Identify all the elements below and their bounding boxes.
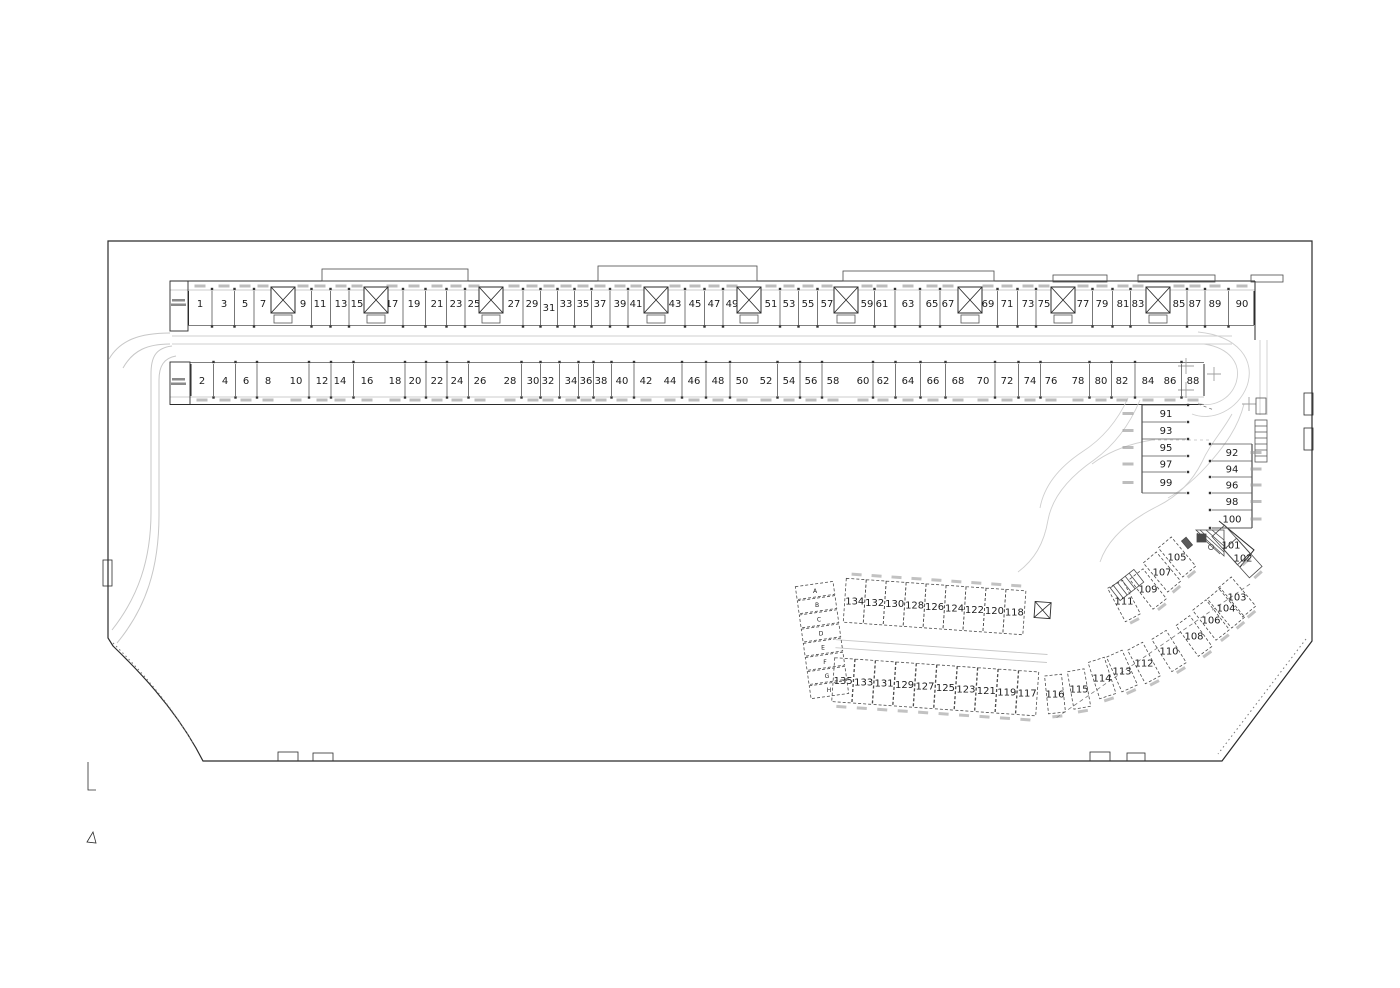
vestibule-label-bar xyxy=(172,299,185,302)
column-dot xyxy=(729,361,731,363)
column-dot xyxy=(703,325,705,327)
boundary-bump-bottom-1 xyxy=(278,752,298,761)
column-dot xyxy=(939,288,941,290)
column-dot xyxy=(1016,325,1018,327)
stall-number-114: 114 xyxy=(1092,674,1111,685)
column-dot xyxy=(797,288,799,290)
stall-tag xyxy=(617,399,628,402)
column-dot xyxy=(425,361,427,363)
stall-tag xyxy=(352,285,363,288)
stall-number-20: 20 xyxy=(409,376,422,387)
stall-number-27: 27 xyxy=(508,299,521,310)
stall-number-1: 1 xyxy=(197,299,203,310)
stall-letter-D: D xyxy=(819,630,824,637)
stall-tag xyxy=(1174,285,1185,288)
column-dot xyxy=(234,396,236,398)
stall-tag xyxy=(1210,285,1221,288)
stall-tag xyxy=(903,399,914,402)
stall-number-104: 104 xyxy=(1216,604,1235,615)
stall-number-130: 130 xyxy=(885,599,904,610)
stall-number-28: 28 xyxy=(504,376,517,387)
stall-number-74: 74 xyxy=(1024,376,1037,387)
column-dot xyxy=(1209,492,1211,494)
stall-tag xyxy=(1187,570,1197,579)
column-dot xyxy=(799,396,801,398)
column-dot xyxy=(310,288,312,290)
stall-tag xyxy=(806,399,817,402)
stall-tag xyxy=(822,285,833,288)
stall-number-26: 26 xyxy=(474,376,487,387)
stall-tag xyxy=(918,711,928,715)
road-edge xyxy=(1048,400,1140,520)
stall-number-86: 86 xyxy=(1164,376,1177,387)
stall-tag xyxy=(1117,399,1128,402)
roof-protrusion xyxy=(598,266,757,281)
column-dot xyxy=(253,325,255,327)
stall-number-51: 51 xyxy=(765,299,778,310)
stall-tag xyxy=(991,582,1001,586)
column-dot xyxy=(573,325,575,327)
shaft-landing xyxy=(367,315,385,323)
column-dot xyxy=(1111,325,1113,327)
column-dot xyxy=(445,288,447,290)
shaft-landing xyxy=(482,315,500,323)
stall-tag xyxy=(336,285,347,288)
column-dot xyxy=(1204,325,1206,327)
stall-number-41: 41 xyxy=(630,299,643,310)
column-dot xyxy=(703,288,705,290)
road-edge xyxy=(1018,520,1048,572)
stall-tag xyxy=(410,399,421,402)
stall-tag xyxy=(737,399,748,402)
stall-number-24: 24 xyxy=(451,376,464,387)
stall-number-60: 60 xyxy=(857,376,870,387)
column-dot xyxy=(1088,396,1090,398)
column-dot xyxy=(894,396,896,398)
column-dot xyxy=(872,361,874,363)
column-dot xyxy=(233,288,235,290)
stall-number-33: 33 xyxy=(560,299,573,310)
stall-number-21: 21 xyxy=(431,299,444,310)
column-dot xyxy=(256,361,258,363)
site-boundary-outline xyxy=(108,241,1312,761)
stall-tag xyxy=(670,285,681,288)
stall-number-83: 83 xyxy=(1132,299,1145,310)
column-dot xyxy=(996,325,998,327)
column-dot xyxy=(873,288,875,290)
stall-tag xyxy=(836,705,846,709)
shaft-xbox xyxy=(1146,287,1170,323)
column-dot xyxy=(1129,325,1131,327)
stall-number-71: 71 xyxy=(1001,299,1014,310)
stall-number-108: 108 xyxy=(1184,632,1203,643)
column-dot xyxy=(994,396,996,398)
column-dot xyxy=(821,361,823,363)
stall-tag xyxy=(862,285,873,288)
column-dot xyxy=(1088,361,1090,363)
stack-91-99: 9193959799 xyxy=(1123,404,1190,494)
stall-number-38: 38 xyxy=(595,376,608,387)
stall-number-134: 134 xyxy=(845,596,864,607)
road-edge xyxy=(109,333,170,359)
stall-tag xyxy=(1123,463,1134,466)
boundary-bump-bottom-3 xyxy=(1090,752,1110,761)
stall-number-85: 85 xyxy=(1173,299,1186,310)
stall-number-67: 67 xyxy=(942,299,955,310)
stall-number-36: 36 xyxy=(580,376,593,387)
stall-number-105: 105 xyxy=(1167,553,1186,564)
stall-tag xyxy=(939,712,949,716)
stall-tag xyxy=(528,399,539,402)
stall-tag xyxy=(566,399,577,402)
stall-tag xyxy=(1097,285,1108,288)
stall-tag xyxy=(561,285,572,288)
column-dot xyxy=(592,361,594,363)
column-dot xyxy=(424,325,426,327)
stall-number-65: 65 xyxy=(926,299,939,310)
stall-number-19: 19 xyxy=(408,299,421,310)
stall-tag xyxy=(1157,602,1167,611)
entrance-roads xyxy=(109,333,176,643)
stall-tag xyxy=(220,399,231,402)
stall-tag xyxy=(195,285,206,288)
column-dot xyxy=(329,325,331,327)
stall-number-40: 40 xyxy=(616,376,629,387)
stall-tag xyxy=(690,285,701,288)
stall-number-99: 99 xyxy=(1160,478,1173,489)
column-dot xyxy=(577,361,579,363)
stall-tag xyxy=(1251,500,1262,503)
stall-tag xyxy=(1251,468,1262,471)
stall-tag xyxy=(298,285,309,288)
column-dot xyxy=(816,288,818,290)
stall-number-69: 69 xyxy=(982,299,995,310)
column-dot xyxy=(556,288,558,290)
stall-tag xyxy=(709,285,720,288)
column-dot xyxy=(609,288,611,290)
column-dot xyxy=(894,361,896,363)
stall-number-37: 37 xyxy=(594,299,607,310)
drive-aisle xyxy=(172,336,1232,344)
stall-tag xyxy=(1123,446,1134,449)
stall-tag xyxy=(578,285,589,288)
stall-tag xyxy=(452,399,463,402)
column-dot xyxy=(1209,476,1211,478)
stall-tag xyxy=(1002,399,1013,402)
lower-shaft-x xyxy=(1034,602,1051,619)
stall-tag xyxy=(1236,621,1246,630)
column-dot xyxy=(1017,396,1019,398)
stall-number-98: 98 xyxy=(1226,497,1239,508)
column-dot xyxy=(776,396,778,398)
stall-tag xyxy=(1118,285,1129,288)
stall-letter-H: H xyxy=(827,687,832,694)
column-dot xyxy=(1209,443,1211,445)
column-dot xyxy=(1187,455,1189,457)
site-boundary-hatch-right xyxy=(1218,639,1306,754)
column-dot xyxy=(994,361,996,363)
column-dot xyxy=(681,361,683,363)
column-dot xyxy=(234,361,236,363)
stall-tag xyxy=(877,285,888,288)
stall-tag xyxy=(891,575,901,579)
stall-tag xyxy=(1039,285,1050,288)
stall-number-49: 49 xyxy=(726,299,739,310)
stall-number-100: 100 xyxy=(1222,515,1241,526)
column-dot xyxy=(1186,288,1188,290)
column-dot xyxy=(558,396,560,398)
column-dot xyxy=(330,361,332,363)
column-dot xyxy=(1091,325,1093,327)
stall-number-106: 106 xyxy=(1201,616,1220,627)
generated-stalls: 1357911131517192123252729313335373941434… xyxy=(189,285,1266,723)
stall-tag xyxy=(1000,716,1010,720)
column-dot xyxy=(539,325,541,327)
stall-number-31: 31 xyxy=(543,303,556,314)
shaft-xbox xyxy=(479,287,503,323)
stall-tag xyxy=(1220,633,1230,642)
column-dot xyxy=(996,288,998,290)
column-dot xyxy=(816,325,818,327)
stall-tag xyxy=(766,285,777,288)
vestibule-label-bar xyxy=(171,304,186,307)
shaft-landing xyxy=(1054,315,1072,323)
lower-parking-block xyxy=(831,572,1052,722)
column-dot xyxy=(1110,361,1112,363)
column-dot xyxy=(894,325,896,327)
column-dot xyxy=(1091,288,1093,290)
stall-tag xyxy=(1078,285,1089,288)
shaft-xbox xyxy=(1051,287,1075,323)
column-dot xyxy=(873,325,875,327)
stall-tag xyxy=(1129,617,1139,624)
column-dot xyxy=(308,396,310,398)
column-dot xyxy=(797,325,799,327)
stall-number-43: 43 xyxy=(669,299,682,310)
stall-tag xyxy=(432,399,443,402)
stall-number-120: 120 xyxy=(985,606,1004,617)
column-dot xyxy=(1227,288,1229,290)
stall-number-88: 88 xyxy=(1187,376,1200,387)
stall-tag xyxy=(631,285,642,288)
stall-tag xyxy=(877,708,887,712)
cross-mark xyxy=(1178,358,1194,374)
column-dot xyxy=(633,361,635,363)
survey-hook xyxy=(88,762,96,790)
stall-number-90: 90 xyxy=(1236,299,1249,310)
stall-number-2: 2 xyxy=(199,376,205,387)
stall-number-6: 6 xyxy=(243,376,249,387)
stall-tag xyxy=(1123,429,1134,432)
stall-number-121: 121 xyxy=(977,686,996,697)
stall-tag xyxy=(927,285,938,288)
lower-aisle-line xyxy=(836,640,1047,655)
column-dot xyxy=(1016,288,1018,290)
roof-protrusion xyxy=(322,269,468,281)
stall-tag xyxy=(713,399,724,402)
floor-plan-page: 1357911131517192123252729313335373941434… xyxy=(0,0,1400,988)
column-dot xyxy=(211,288,213,290)
stall-tag xyxy=(911,577,921,581)
stall-tag xyxy=(903,285,914,288)
stall-number-66: 66 xyxy=(927,376,940,387)
stall-tag xyxy=(1123,481,1134,484)
stall-tag xyxy=(1143,399,1154,402)
stall-tag xyxy=(1251,484,1262,487)
column-dot xyxy=(577,396,579,398)
column-dot xyxy=(1039,361,1041,363)
stall-tag xyxy=(197,399,208,402)
column-dot xyxy=(1111,288,1113,290)
column-dot xyxy=(352,396,354,398)
stall-tag xyxy=(596,399,607,402)
column-dot xyxy=(558,361,560,363)
stall-tag xyxy=(317,399,328,402)
stall-tag xyxy=(727,285,738,288)
column-dot xyxy=(944,361,946,363)
stall-tag xyxy=(219,285,230,288)
stall-tag xyxy=(761,399,772,402)
road-edge xyxy=(117,356,176,643)
column-dot xyxy=(610,361,612,363)
column-dot xyxy=(627,288,629,290)
stall-tag xyxy=(527,285,538,288)
column-dot xyxy=(919,288,921,290)
shaft-xbox xyxy=(834,287,858,323)
stall-number-87: 87 xyxy=(1189,299,1202,310)
stall-tag xyxy=(979,715,989,719)
stall-number-92: 92 xyxy=(1226,448,1239,459)
stall-number-14: 14 xyxy=(334,376,347,387)
stall-number-70: 70 xyxy=(977,376,990,387)
column-dot xyxy=(446,361,448,363)
column-dot xyxy=(705,396,707,398)
stall-number-73: 73 xyxy=(1022,299,1035,310)
stall-number-119: 119 xyxy=(997,687,1016,698)
stall-number-16: 16 xyxy=(361,376,374,387)
column-dot xyxy=(424,288,426,290)
stall-number-34: 34 xyxy=(565,376,578,387)
stall-letter-C: C xyxy=(817,616,821,623)
column-dot xyxy=(467,361,469,363)
stall-tag xyxy=(1002,285,1013,288)
stall-tag xyxy=(291,399,302,402)
column-dot xyxy=(211,325,213,327)
stall-letter-E: E xyxy=(821,645,825,652)
stall-number-9: 9 xyxy=(300,299,306,310)
stall-tag xyxy=(1202,650,1212,658)
stall-tag xyxy=(931,578,941,582)
stall-number-89: 89 xyxy=(1209,299,1222,310)
site-boundary xyxy=(87,241,1313,843)
stall-tag xyxy=(1096,399,1107,402)
vestibule-label-bar xyxy=(172,378,185,381)
parking-plan-canvas: 1357911131517192123252729313335373941434… xyxy=(0,0,1400,988)
column-dot xyxy=(1180,396,1182,398)
stall-tag xyxy=(240,285,251,288)
stall-tag xyxy=(581,399,592,402)
shaft-xbox xyxy=(271,287,295,323)
stall-tag xyxy=(475,399,486,402)
column-dot xyxy=(330,396,332,398)
stall-tag xyxy=(928,399,939,402)
stall-number-79: 79 xyxy=(1096,299,1109,310)
stall-tag xyxy=(951,580,961,584)
stall-tag xyxy=(689,399,700,402)
stall-letter-F: F xyxy=(823,659,827,666)
column-dot xyxy=(348,325,350,327)
stall-number-61: 61 xyxy=(876,299,889,310)
stall-number-115: 115 xyxy=(1069,685,1088,696)
stall-number-112: 112 xyxy=(1134,659,1153,670)
stall-tag xyxy=(871,574,881,578)
stall-number-59: 59 xyxy=(861,299,874,310)
stall-tag xyxy=(665,399,676,402)
stall-tag xyxy=(390,399,401,402)
stall-number-77: 77 xyxy=(1077,299,1090,310)
column-dot xyxy=(425,396,427,398)
column-dot xyxy=(627,325,629,327)
stall-number-131: 131 xyxy=(875,679,894,690)
stall-tag xyxy=(1176,666,1186,674)
stall-number-95: 95 xyxy=(1160,443,1173,454)
column-dot xyxy=(609,325,611,327)
stall-number-68: 68 xyxy=(952,376,965,387)
stall-tag xyxy=(1078,709,1088,714)
stall-number-110: 110 xyxy=(1159,647,1178,658)
column-dot xyxy=(329,288,331,290)
column-dot xyxy=(402,325,404,327)
column-dot xyxy=(464,325,466,327)
column-dot xyxy=(352,361,354,363)
stall-tag xyxy=(595,285,606,288)
column-dot xyxy=(539,396,541,398)
stall-number-107: 107 xyxy=(1152,568,1171,579)
column-dot xyxy=(779,325,781,327)
column-dot xyxy=(779,288,781,290)
column-dot xyxy=(212,396,214,398)
stall-tag xyxy=(784,285,795,288)
column-dot xyxy=(894,288,896,290)
stall-number-44: 44 xyxy=(664,376,677,387)
column-dot xyxy=(1209,527,1211,529)
column-dot xyxy=(1180,361,1182,363)
stall-number-133: 133 xyxy=(854,677,873,688)
stall-tag xyxy=(1123,412,1134,415)
vestibule-label-bar xyxy=(171,383,186,386)
column-dot xyxy=(590,288,592,290)
column-dot xyxy=(539,288,541,290)
stall-number-94: 94 xyxy=(1226,465,1239,476)
column-dot xyxy=(939,325,941,327)
column-dot xyxy=(308,361,310,363)
column-dot xyxy=(253,288,255,290)
stall-number-12: 12 xyxy=(316,376,329,387)
stall-number-75: 75 xyxy=(1038,299,1051,310)
roof-protrusion xyxy=(1251,275,1283,282)
column-dot xyxy=(919,325,921,327)
stall-number-124: 124 xyxy=(945,603,964,614)
stall-tag xyxy=(1251,518,1262,521)
stall-number-76: 76 xyxy=(1045,376,1058,387)
column-dot xyxy=(520,361,522,363)
top-stall-row: 1357911131517192123252729313335373941434… xyxy=(189,285,1255,328)
stall-tag xyxy=(335,399,346,402)
stall-tag xyxy=(1052,714,1062,718)
column-dot xyxy=(705,361,707,363)
column-dot xyxy=(573,288,575,290)
shaft-landing xyxy=(274,315,292,323)
